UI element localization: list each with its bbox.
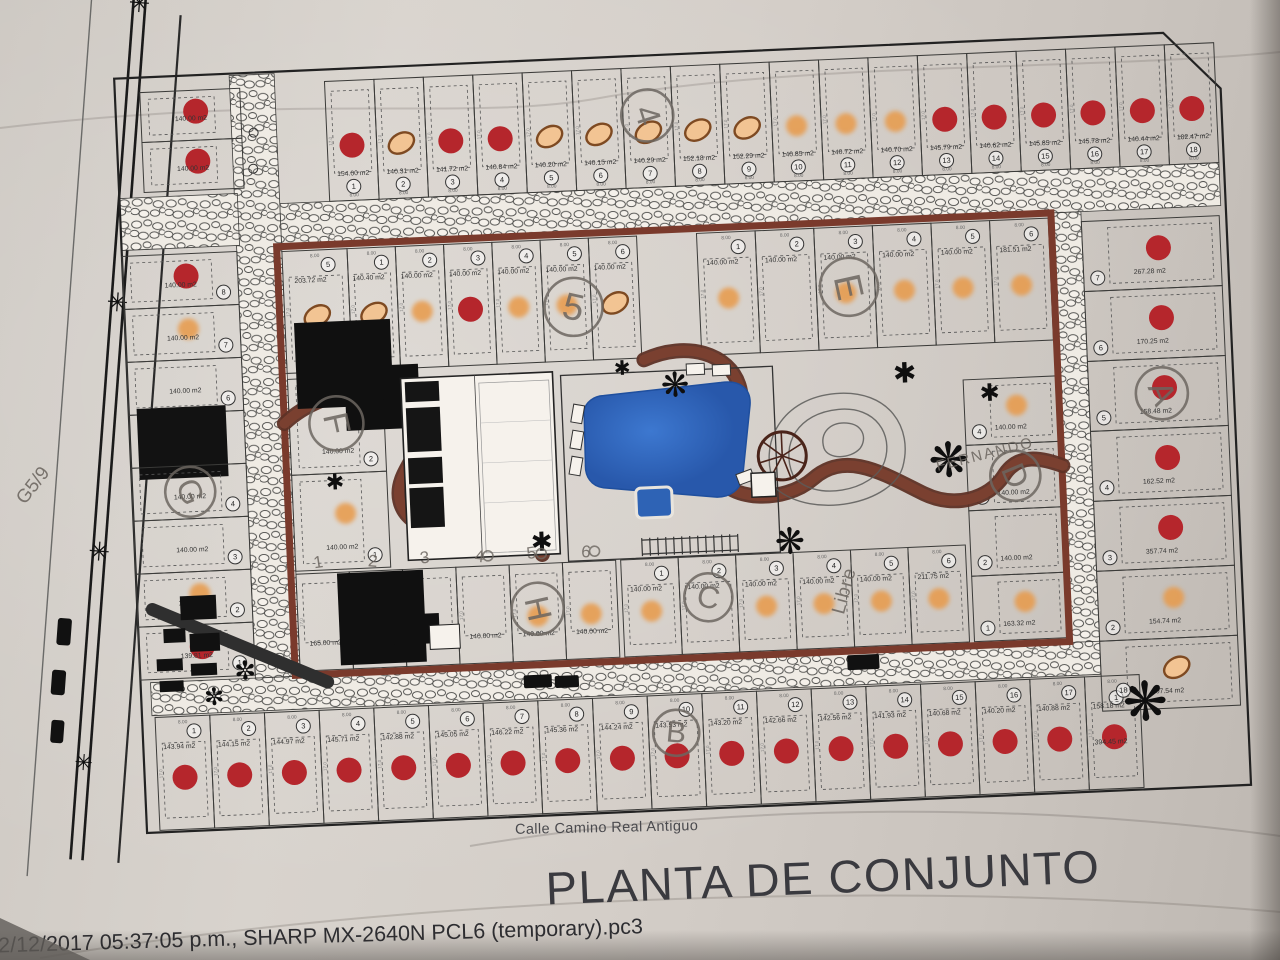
lot-frontage-dim: 8.00 xyxy=(843,171,853,177)
lot-area: 140.00 m2 xyxy=(169,387,202,395)
lot-number: 13 xyxy=(846,697,855,706)
lot-area: 142.88 m2 xyxy=(382,733,415,741)
lot-marker-red xyxy=(937,731,963,757)
lot-number: 5 xyxy=(889,559,894,568)
green-area-label: 394.45 m2 xyxy=(1094,738,1127,746)
lot-frontage-dim: 8.00 xyxy=(721,235,731,241)
lot-frontage-dim: 8.00 xyxy=(596,181,606,187)
lot-area: 140.72 m2 xyxy=(831,148,864,156)
lot: 8152.18 m28.0017.0 xyxy=(670,64,725,186)
palm-tree-icon: ✼ xyxy=(234,655,257,686)
lot-area: 140.00 m2 xyxy=(175,115,208,123)
lot-frontage-dim: 8.00 xyxy=(695,177,705,183)
lot-area: 145.71 m2 xyxy=(327,736,360,744)
lot-frontage-dim: 8.00 xyxy=(498,186,508,192)
lot-number: 3 xyxy=(450,177,455,186)
lot-number: 4 xyxy=(977,427,982,436)
lot-frontage-dim: 8.00 xyxy=(992,164,1002,170)
lot: 16145.78 m28.0017.0 xyxy=(1065,47,1120,169)
lot: 1140.00 m28.0017.0 xyxy=(696,231,760,355)
pool-fence xyxy=(642,534,739,556)
lot-area: 140.00 m2 xyxy=(882,251,915,259)
lot-number: 2 xyxy=(983,558,988,567)
lot-number: 6 xyxy=(1099,343,1104,352)
lot-depth-dim: 17.0 xyxy=(158,769,163,779)
lot-depth-dim: 17.0 xyxy=(822,115,827,125)
lot: 6170.25 m2 xyxy=(1084,286,1225,362)
handwritten-letter: F xyxy=(315,409,358,438)
lot-depth-dim: 17.0 xyxy=(328,136,333,146)
lot-area: 143.94 m2 xyxy=(163,743,196,751)
lot-number: 1 xyxy=(352,182,357,191)
lot-depth-dim: 17.0 xyxy=(796,596,801,606)
lot-depth-dim: 17.0 xyxy=(970,108,975,118)
handwritten-letter: 5 xyxy=(559,284,589,330)
parked-car xyxy=(56,618,72,646)
lot-depth-dim: 17.0 xyxy=(1019,106,1024,116)
lot-number: 3 xyxy=(1108,553,1113,562)
lot-marker-outlined-oval xyxy=(731,113,764,143)
lot-marker-red xyxy=(339,132,365,158)
lot-marker-red xyxy=(1145,235,1171,261)
lot-number: 5 xyxy=(1102,413,1107,422)
lot-marker-orange xyxy=(884,111,906,133)
lot-number: 8 xyxy=(574,709,579,718)
lot-area: 152.18 m2 xyxy=(683,155,716,163)
lot-marker-red xyxy=(773,738,799,764)
lot: 4140.00 m2 xyxy=(963,376,1061,446)
lot-frontage-dim: 8.00 xyxy=(233,717,243,723)
lot-number: 2 xyxy=(369,454,374,463)
lot-depth-dim: 17.0 xyxy=(447,300,452,310)
handwritten-circled-mark: E xyxy=(819,257,879,317)
lot-number: 9 xyxy=(629,707,634,716)
tree-icon: ✳ xyxy=(74,749,94,775)
lot: 5140.20 m28.0017.0 xyxy=(522,71,577,193)
lot-frontage-dim: 8.00 xyxy=(608,240,618,246)
lot-frontage-dim: 8.00 xyxy=(287,714,297,720)
lot-area: 145.36 m2 xyxy=(546,726,579,734)
lot-area: 140.00 m2 xyxy=(745,580,778,588)
lot-depth-dim: 17.0 xyxy=(700,289,705,299)
lot-area: 140.00 m2 xyxy=(941,248,974,256)
lot-frontage-dim: 8.00 xyxy=(451,707,461,713)
lot-depth-dim: 17.0 xyxy=(723,119,728,129)
lot-marker-outlined-oval xyxy=(599,288,632,318)
lot-number: 7 xyxy=(648,169,653,178)
lot: 140.00 m2 xyxy=(142,138,244,192)
handwritten-letter: A xyxy=(1140,376,1184,412)
lot-depth-dim: 17.0 xyxy=(268,764,273,774)
tree-icon: ❋ xyxy=(660,366,690,405)
handwritten-letter: H xyxy=(516,593,558,625)
lot-number: 7 xyxy=(224,340,229,349)
lot-marker-red xyxy=(500,750,526,776)
lot-number: 6 xyxy=(599,171,604,180)
lot-depth-dim: 17.0 xyxy=(772,117,777,127)
lot-depth-dim: 17.0 xyxy=(213,766,218,776)
lot-marker-red xyxy=(438,128,464,154)
lot: 1163.32 m2 xyxy=(972,572,1070,642)
lot-frontage-dim: 8.00 xyxy=(745,175,755,181)
lot: 2144.15 m28.0017.0 xyxy=(210,713,270,828)
lot-depth-dim: 17.0 xyxy=(350,304,355,314)
lot: 16140.20 m28.0017.0 xyxy=(975,679,1035,794)
lot-depth-dim: 17.0 xyxy=(459,611,464,621)
lot-area: 141.72 m2 xyxy=(436,165,469,173)
lot: 4140.84 m28.0017.0 xyxy=(473,73,528,195)
lot-number: 1 xyxy=(659,569,664,578)
lot-frontage-dim: 8.00 xyxy=(780,232,790,238)
lot-frontage-dim: 8.00 xyxy=(670,698,680,704)
lot-frontage-dim: 8.00 xyxy=(893,168,903,174)
lot: 3144.97 m28.0017.0 xyxy=(264,710,324,825)
lot-number: 12 xyxy=(893,158,902,167)
lot: 7140.00 m2 xyxy=(124,304,241,362)
lot-area: 203.72 m2 xyxy=(294,277,327,285)
lot-depth-dim: 17.0 xyxy=(486,754,491,764)
lot: 1154.00 m28.0017.0 xyxy=(324,79,379,201)
handwritten-letter: G xyxy=(169,473,212,510)
lot-depth-dim: 17.0 xyxy=(993,276,998,286)
lot-frontage-dim: 8.00 xyxy=(561,702,571,708)
lot-number: 4 xyxy=(500,175,505,184)
lot-depth-dim: 17.0 xyxy=(541,752,546,762)
lot-depth-dim: 17.0 xyxy=(1033,731,1038,741)
lot-marker-orange xyxy=(641,600,663,622)
lot-depth-dim: 17.0 xyxy=(760,743,765,753)
lot-number: 8 xyxy=(221,287,226,296)
lot-depth-dim: 17.0 xyxy=(427,132,432,142)
handwritten-circled-mark: H xyxy=(511,582,565,636)
handwritten-number: 2 xyxy=(367,551,378,571)
lot-area: 144.24 m2 xyxy=(601,724,634,732)
lot-frontage-dim: 8.00 xyxy=(889,688,899,694)
lot-number: 7 xyxy=(520,712,525,721)
handwritten-number: 1 xyxy=(312,552,324,572)
lot: 2140.00 m28.0017.0 xyxy=(395,244,449,368)
lot-area: 140.88 m2 xyxy=(1038,705,1071,713)
lot-number: 6 xyxy=(465,714,470,723)
lot-area: 144.97 m2 xyxy=(272,738,305,746)
lot: 140.00 m217.0 xyxy=(562,560,620,659)
lot-marker-red xyxy=(1158,514,1184,540)
lot-frontage-dim: 8.00 xyxy=(956,225,966,231)
lot-number: 6 xyxy=(1029,229,1034,238)
lot-depth-dim: 17.0 xyxy=(377,134,382,144)
lot-marker-red xyxy=(1179,95,1205,121)
lot-area: 165.00 m2 xyxy=(309,639,342,647)
lot-depth-dim: 17.0 xyxy=(1168,100,1173,110)
lot-depth-dim: 17.0 xyxy=(592,294,597,304)
model-house-south xyxy=(337,568,461,665)
lot: 10140.85 m28.0017.0 xyxy=(769,60,824,182)
lot: 6140.00 m28.0017.0 xyxy=(588,236,642,360)
tree-icon: ✱ xyxy=(892,357,917,389)
lot-area: 182.47 m2 xyxy=(1177,133,1210,141)
lot-area: 140.00 m2 xyxy=(326,543,359,551)
lot: 13142.56 m28.0017.0 xyxy=(811,686,871,801)
lot-number: 1 xyxy=(379,258,384,267)
lot-frontage-dim: 8.00 xyxy=(645,562,655,568)
lot: 9152.29 m28.0017.0 xyxy=(720,62,775,184)
lot: 5140.00 m28.0017.0 xyxy=(931,221,995,345)
lot-depth-dim: 17.0 xyxy=(432,757,437,767)
lot-number: 16 xyxy=(1010,690,1019,699)
lot-depth-dim: 17.0 xyxy=(705,745,710,755)
lot-marker-orange xyxy=(894,279,916,301)
lot-area: 267.28 m2 xyxy=(1134,268,1167,276)
lot-number: 2 xyxy=(235,605,240,614)
lot-marker-orange xyxy=(335,502,357,524)
lot-number: 6 xyxy=(946,556,951,565)
lot: 6145.05 m28.0017.0 xyxy=(428,703,488,818)
lot-frontage-dim: 8.00 xyxy=(310,253,320,259)
handwritten-letter: B xyxy=(665,715,688,750)
lot: 2140.00 m2 xyxy=(969,507,1067,577)
lot: 15145.85 m28.0017.0 xyxy=(1016,49,1071,171)
lot-depth-dim: 17.0 xyxy=(674,121,679,131)
lot-number: 1 xyxy=(192,726,197,735)
lot-frontage-dim: 8.00 xyxy=(1090,160,1100,166)
lot-marker-red xyxy=(883,733,909,759)
lot-depth-dim: 17.0 xyxy=(565,606,570,616)
lot-frontage-dim: 8.00 xyxy=(1014,222,1024,228)
lot-area: 145.78 m2 xyxy=(1078,137,1111,145)
lot-area: 154.74 m2 xyxy=(1149,617,1182,625)
lot-frontage-dim: 8.00 xyxy=(547,183,557,189)
lot-area: 140.00 m2 xyxy=(765,256,798,264)
lot-depth-dim: 17.0 xyxy=(624,603,629,613)
lot-number: 5 xyxy=(549,173,554,182)
lot-frontage-dim: 8.00 xyxy=(1053,681,1063,687)
lot-frontage-dim: 8.00 xyxy=(834,690,844,696)
lot-marker-orange xyxy=(508,296,530,318)
lot-area: 140.00 m2 xyxy=(177,165,210,173)
lot-number: 5 xyxy=(572,249,577,258)
tree-icon: ✱ xyxy=(979,379,1000,407)
lot-number: 9 xyxy=(747,164,752,173)
lot: 6140.00 m2 xyxy=(127,357,244,415)
lot-marker-outlined-oval xyxy=(533,122,566,152)
lot: 3141.72 m28.0017.0 xyxy=(423,75,478,197)
lot: 14141.93 m28.0017.0 xyxy=(866,684,926,799)
lot-depth-dim: 17.0 xyxy=(650,747,655,757)
lot-marker-red xyxy=(932,106,958,132)
lot-depth-dim: 17.0 xyxy=(476,130,481,140)
lot-marker-outlined-oval xyxy=(385,128,418,158)
lot-area: 152.29 m2 xyxy=(732,152,765,160)
lot-marker-red xyxy=(609,745,635,771)
lot-frontage-dim: 8.00 xyxy=(1140,158,1150,164)
lot-frontage-dim: 8.00 xyxy=(702,559,712,565)
lot-frontage-dim: 8.00 xyxy=(615,700,625,706)
lot: 4145.71 m28.0017.0 xyxy=(319,708,379,823)
lot-number: 3 xyxy=(233,552,238,561)
lot-number: 14 xyxy=(992,154,1001,163)
handwritten-circled-mark: 5 xyxy=(543,277,603,337)
lot-frontage-dim: 8.00 xyxy=(506,705,516,711)
lot-frontage-dim: 8.00 xyxy=(415,248,425,254)
lot-number: 5 xyxy=(410,717,415,726)
lot-frontage-dim: 8.00 xyxy=(779,693,789,699)
lot-area: 158.18 m2 xyxy=(1093,702,1126,710)
lot-depth-dim: 17.0 xyxy=(934,279,939,289)
lot-depth-dim: 17.0 xyxy=(759,287,764,297)
lot-frontage-dim: 8.00 xyxy=(725,695,735,701)
lot-number: 15 xyxy=(955,693,964,702)
lot-marker-red xyxy=(336,757,362,783)
lot: 4140.00 m28.0017.0 xyxy=(872,223,936,347)
lot: 7146.22 m28.0017.0 xyxy=(483,701,543,816)
lot-number: 15 xyxy=(1041,151,1050,160)
lot-area: 140.20 m2 xyxy=(535,161,568,169)
lot-number: 10 xyxy=(794,162,803,171)
lot-area: 144.15 m2 xyxy=(218,740,251,748)
lot-marker-red xyxy=(227,762,253,788)
lot-number: 2 xyxy=(794,239,799,248)
lot-marker-orange xyxy=(1006,394,1028,416)
lot-number: 1 xyxy=(736,242,741,251)
lot-depth-dim: 17.0 xyxy=(596,750,601,760)
lot-area: 162.52 m2 xyxy=(1143,477,1176,485)
lot-marker-orange xyxy=(1011,274,1033,296)
lot: 11140.72 m28.0017.0 xyxy=(818,58,873,180)
lot-area: 139.81 m2 xyxy=(181,652,214,660)
lot-area: 140.00 m2 xyxy=(469,632,502,640)
lot-marker-red xyxy=(719,740,745,766)
parked-car xyxy=(50,720,65,744)
lot-frontage-dim: 8.00 xyxy=(932,549,942,555)
lot-number: 16 xyxy=(1090,149,1099,158)
lot-frontage-dim: 8.00 xyxy=(463,246,473,252)
lot-marker-red xyxy=(1129,98,1155,124)
lot-marker-red xyxy=(281,759,307,785)
lot: 140.00 m217.0 xyxy=(456,565,514,664)
lot-area: 140.00 m2 xyxy=(165,281,198,289)
lot-frontage-dim: 8.00 xyxy=(560,242,570,248)
photographed-site-plan: ✳ ✳ ✳ ✳ xyxy=(0,0,1280,960)
lot-area: 142.66 m2 xyxy=(765,717,798,725)
lot-number: 13 xyxy=(942,156,951,165)
lot-area: 140.68 m2 xyxy=(929,709,962,717)
lot-frontage-dim: 8.00 xyxy=(875,552,885,558)
lot-marker-orange xyxy=(835,113,857,135)
lot: 8140.00 m2 xyxy=(122,252,239,310)
lot-number: 3 xyxy=(476,253,481,262)
lot-depth-dim: 17.0 xyxy=(575,126,580,136)
lot-frontage-dim: 8.00 xyxy=(838,230,848,236)
lot-depth-dim: 17.0 xyxy=(1088,728,1093,738)
lot-area: 140.85 m2 xyxy=(782,150,815,158)
lot-area: 140.00 m2 xyxy=(594,264,627,272)
lot-depth-dim: 17.0 xyxy=(1118,102,1123,112)
lot-number: 17 xyxy=(1140,147,1149,156)
lot-area: 145.85 m2 xyxy=(1029,139,1062,147)
lot-depth-dim: 17.0 xyxy=(911,591,916,601)
lot-marker-orange xyxy=(1163,586,1185,608)
lot-area: 140.00 m2 xyxy=(630,585,663,593)
lot: 9144.24 m28.0017.0 xyxy=(592,696,652,811)
lot-number: 3 xyxy=(774,564,779,573)
lot-frontage-dim: 8.00 xyxy=(817,554,827,560)
lot-marker-red xyxy=(1080,100,1106,126)
tree-icon: ✳ xyxy=(127,0,151,19)
lot-marker-red xyxy=(172,764,198,790)
lot: 7267.28 m2 xyxy=(1081,216,1222,292)
lot-marker-red xyxy=(992,728,1018,754)
lot-depth-dim: 17.0 xyxy=(299,618,304,628)
lot-area: 140.00 m2 xyxy=(860,575,893,583)
lot-area: 145.05 m2 xyxy=(436,731,469,739)
lot-area: 140.44 m2 xyxy=(1127,135,1160,143)
lot-frontage-dim: 8.00 xyxy=(998,683,1008,689)
parked-car xyxy=(51,670,67,696)
lot-number: 3 xyxy=(301,721,306,730)
lot-frontage-dim: 8.00 xyxy=(897,227,907,233)
lot-number: 2 xyxy=(427,255,432,264)
lot: 17140.88 m28.0017.0 xyxy=(1030,677,1090,792)
lot-area: 140.00 m2 xyxy=(401,272,434,280)
lot-number: 12 xyxy=(791,700,800,709)
lot-frontage-dim: 8.00 xyxy=(399,190,409,196)
lot-number: 2 xyxy=(401,179,406,188)
photo-edge-shadow xyxy=(0,930,1280,960)
lot-number: 1 xyxy=(986,623,991,632)
lot-area: 140.29 m2 xyxy=(633,157,666,165)
lot-number: 6 xyxy=(620,247,625,256)
lot-number: 5 xyxy=(326,260,331,269)
lot-area: 211.75 m2 xyxy=(917,573,949,581)
handwritten-letter: E xyxy=(826,270,872,304)
lot-depth-dim: 17.0 xyxy=(322,762,327,772)
lot-area: 140.00 m2 xyxy=(576,628,609,636)
lot-number: 4 xyxy=(356,719,361,728)
lot: 2140.00 m28.0017.0 xyxy=(755,228,819,352)
lot-frontage-dim: 8.00 xyxy=(943,686,953,692)
tree-icon: ❋ xyxy=(774,520,806,562)
lot-area: 140.00 m2 xyxy=(802,578,835,586)
handwritten-small-circle xyxy=(589,546,599,556)
lot-marker-outlined-oval xyxy=(583,119,616,149)
lot: 3357.74 m2 xyxy=(1094,495,1235,571)
lot-marker-red xyxy=(828,736,854,762)
lot-area: 140.00 m2 xyxy=(449,270,482,278)
lot-number: 8 xyxy=(697,167,702,176)
lot-marker-red xyxy=(487,126,513,152)
jacuzzi xyxy=(636,487,673,519)
lot-number: 7 xyxy=(1095,273,1100,282)
lot-depth-dim: 17.0 xyxy=(924,735,929,745)
lot-marker-red xyxy=(1155,444,1181,470)
lot-area: 140.00 m2 xyxy=(706,259,739,267)
lot-area: 140.20 m2 xyxy=(983,707,1016,715)
lot-depth-dim: 17.0 xyxy=(377,759,382,769)
lot-depth-dim: 17.0 xyxy=(495,298,500,308)
lot: 8145.36 m28.0017.0 xyxy=(538,698,598,813)
lot-depth-dim: 17.0 xyxy=(978,733,983,743)
lot-number: 18 xyxy=(1189,145,1198,154)
lot-depth-dim: 17.0 xyxy=(1069,104,1074,114)
lot-area: 140.00 m2 xyxy=(1000,554,1033,562)
lot-area: 140.40 m2 xyxy=(352,274,385,282)
lot: 4162.52 m2 xyxy=(1090,425,1231,501)
lot-frontage-dim: 8.00 xyxy=(1041,162,1051,168)
lot-marker-red xyxy=(457,296,483,322)
tree-icon: ✱ xyxy=(325,469,345,495)
lot-number: 5 xyxy=(970,232,975,241)
lot-area: 140.84 m2 xyxy=(485,163,518,171)
